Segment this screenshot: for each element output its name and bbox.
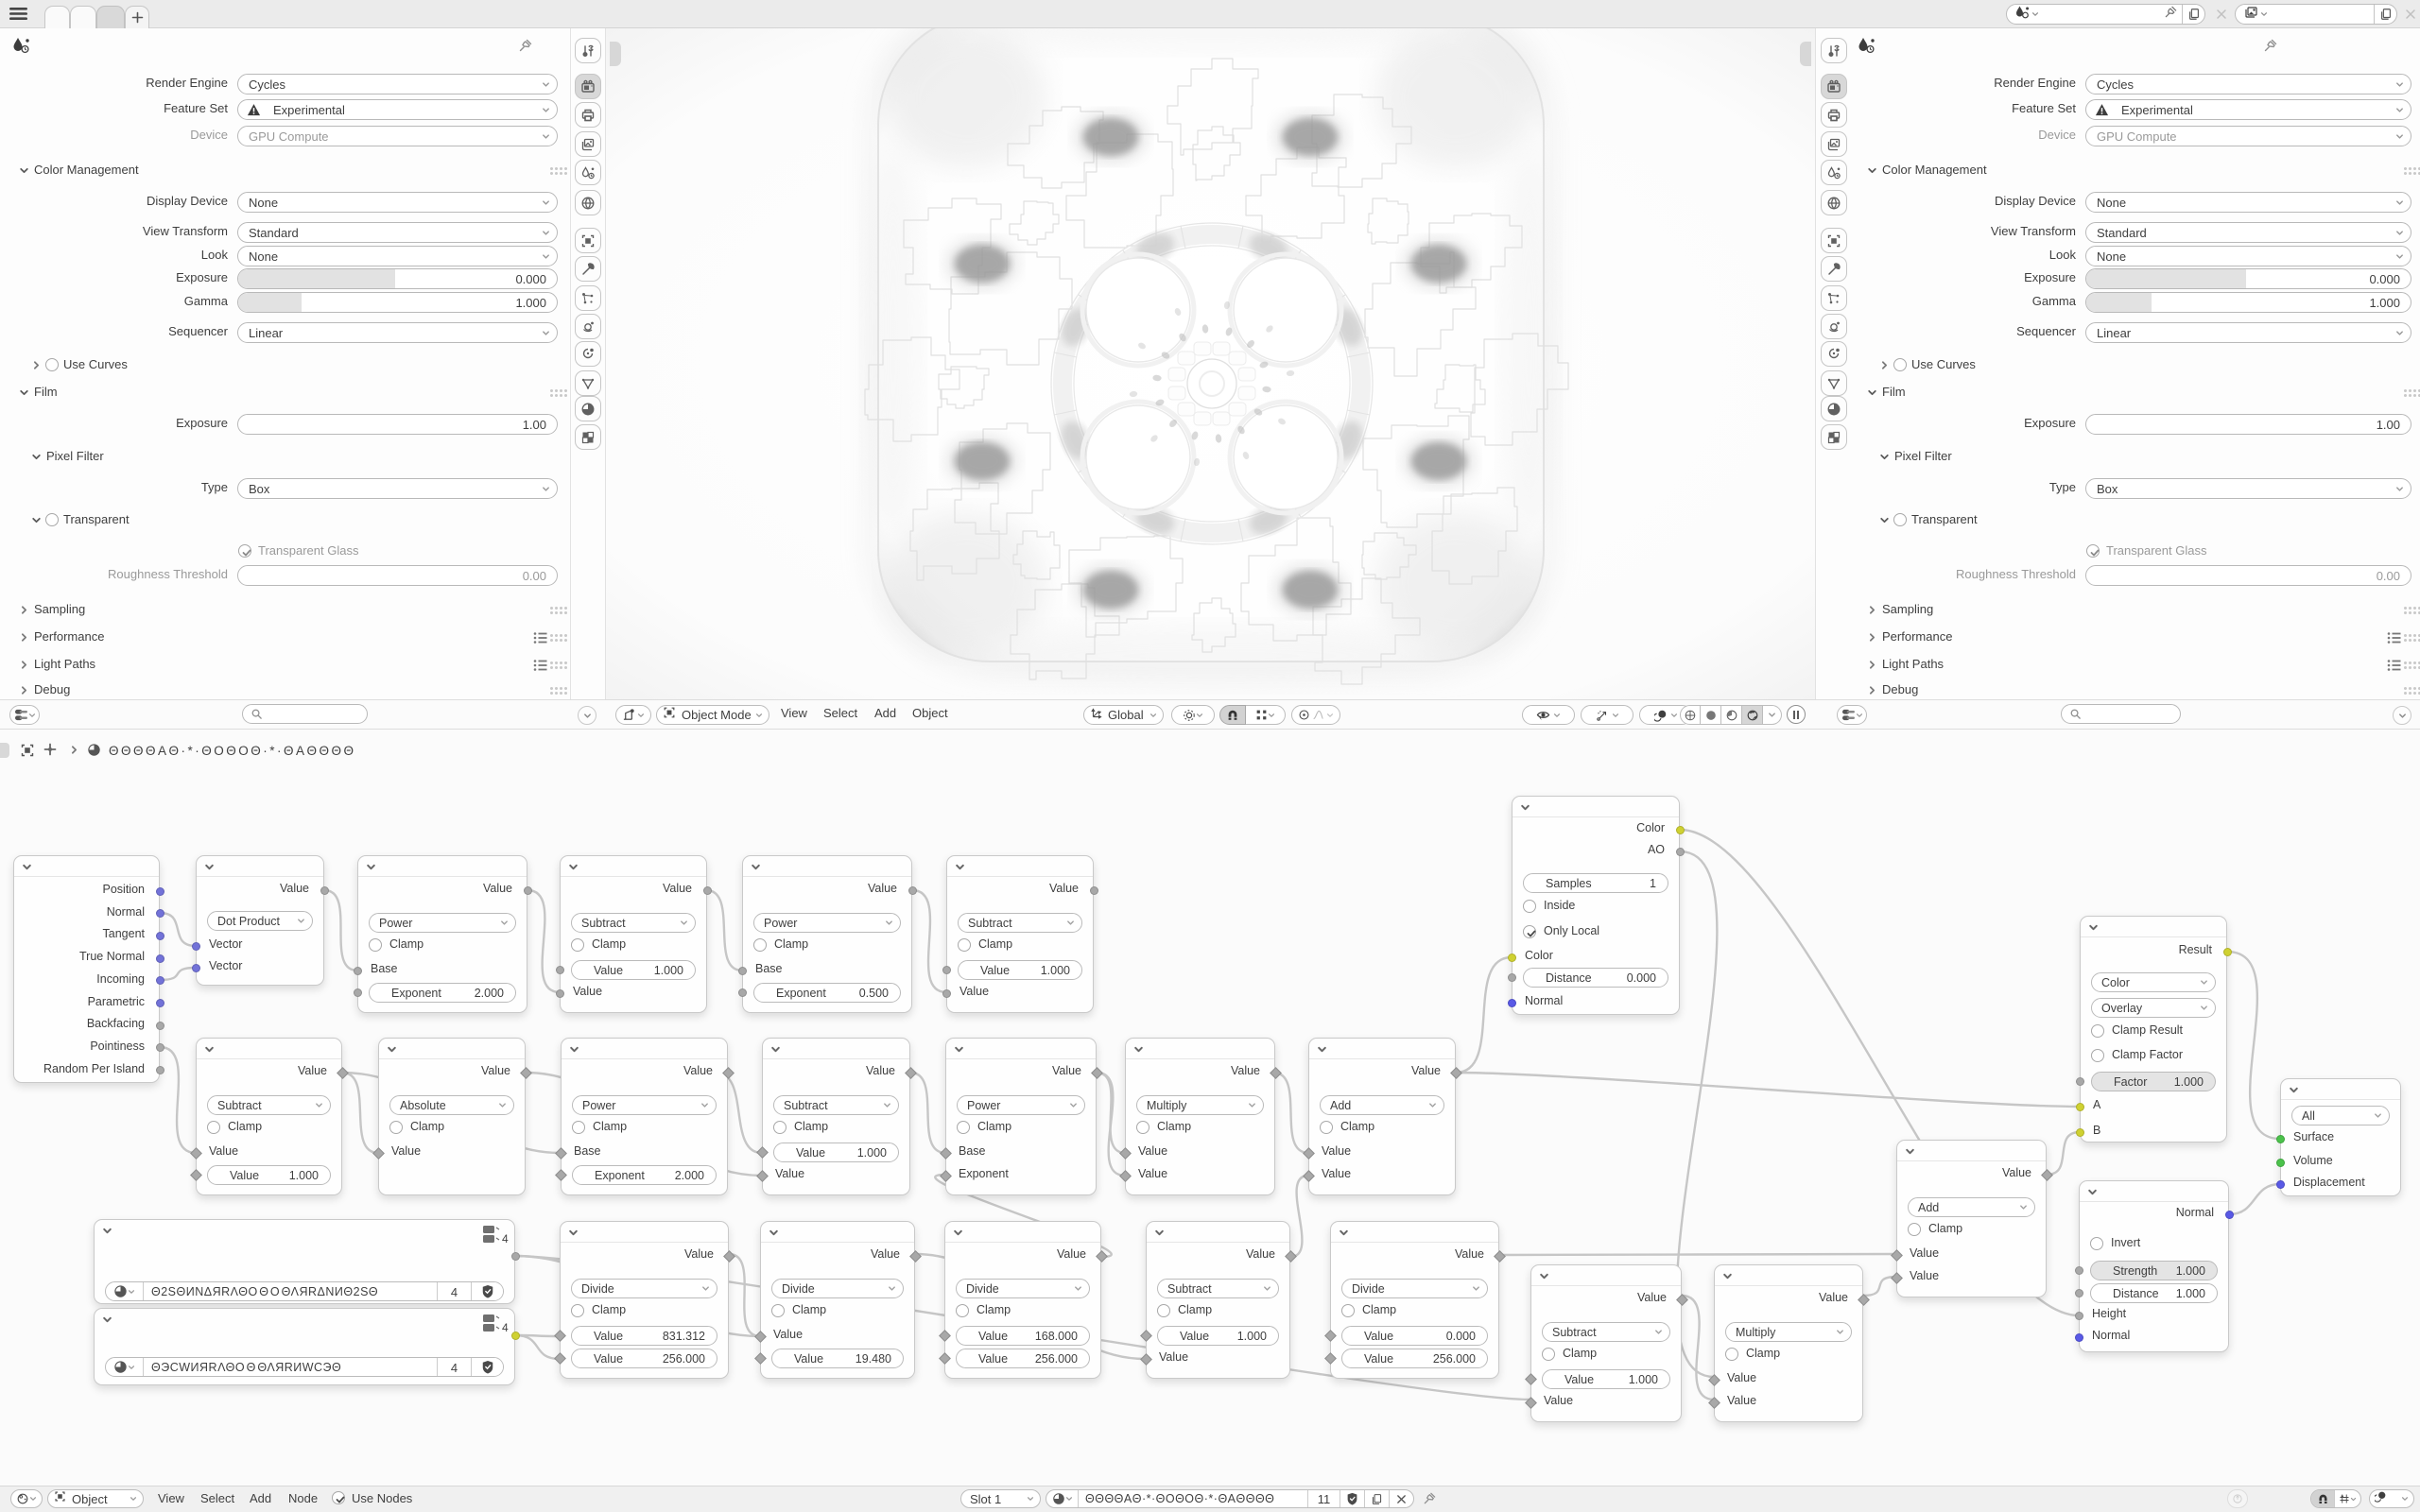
svg-text:4: 4 — [502, 1232, 509, 1246]
svg-text:4: 4 — [502, 1321, 509, 1334]
